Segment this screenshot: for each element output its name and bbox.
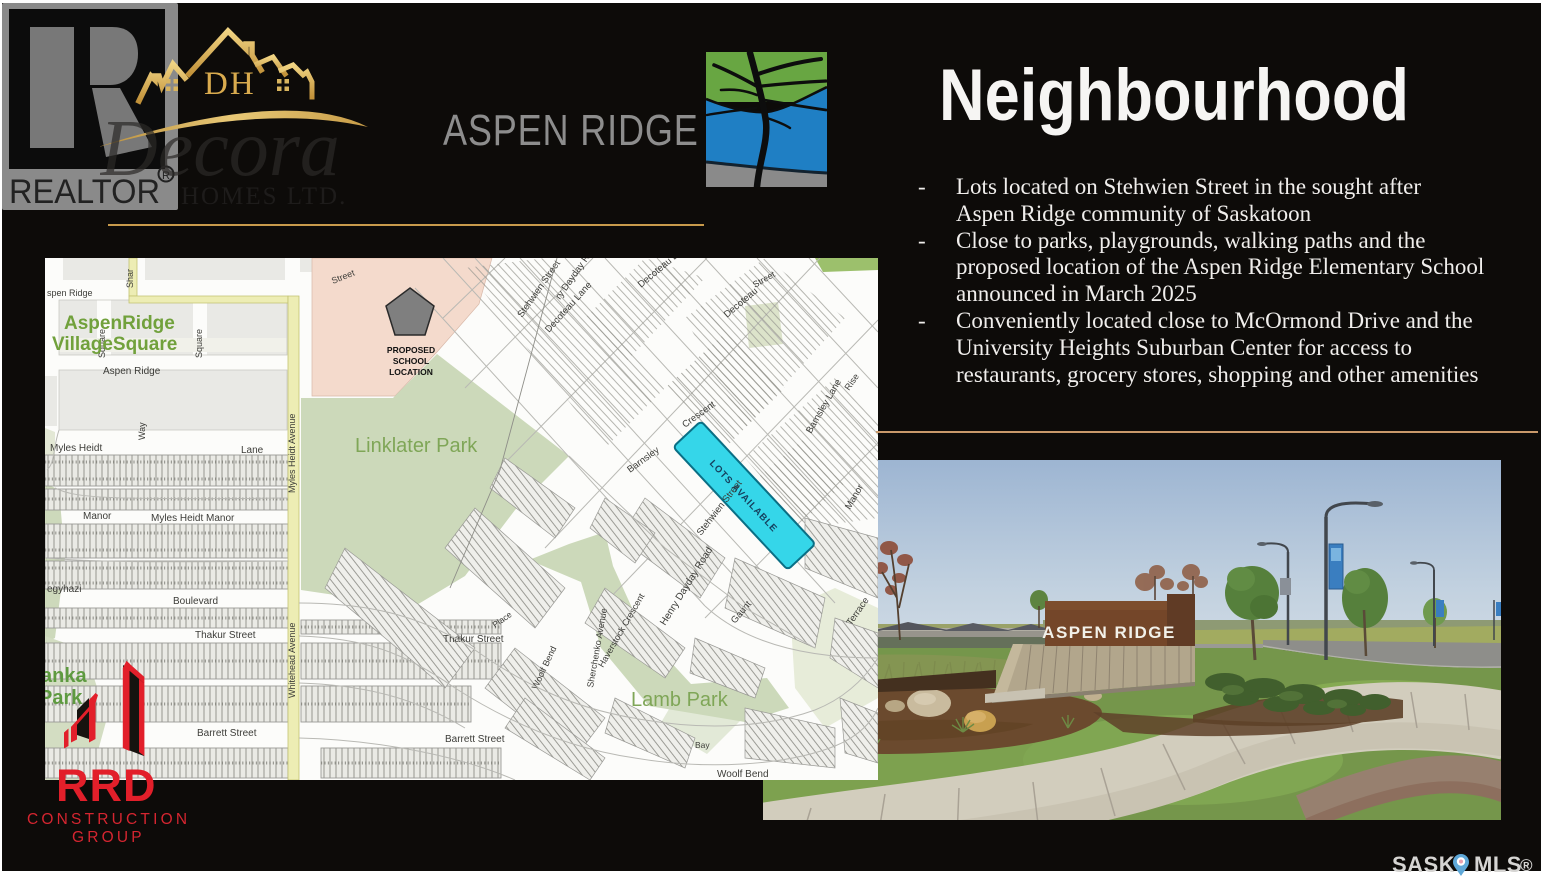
svg-text:SASK: SASK [1392,852,1455,877]
svg-text:Whitehead Avenue: Whitehead Avenue [287,623,297,698]
svg-text:egyhazi: egyhazi [47,584,81,595]
svg-text:ASPEN RIDGE: ASPEN RIDGE [1042,623,1176,642]
svg-text:Boulevard: Boulevard [173,596,218,607]
svg-text:Way: Way [137,422,147,440]
svg-text:Shar: Shar [125,269,135,288]
svg-text:Decora: Decora [100,105,340,193]
svg-text:Myles Heidt Avenue: Myles Heidt Avenue [287,414,297,493]
svg-text:PROPOSED: PROPOSED [387,345,435,355]
svg-text:Lane: Lane [241,445,264,456]
svg-text:LOCATION: LOCATION [389,367,433,377]
svg-text:MLS: MLS [1474,852,1522,877]
svg-text:Bay: Bay [695,740,710,750]
svg-text:Linklater Park: Linklater Park [355,435,478,457]
svg-text:HOMES LTD.: HOMES LTD. [181,183,347,210]
svg-text:Manor: Manor [83,511,112,522]
svg-text:Woolf Bend: Woolf Bend [717,769,769,780]
svg-text:VillageSquare: VillageSquare [52,334,177,355]
svg-text:spen Ridge: spen Ridge [47,288,93,298]
svg-text:Aspen Ridge: Aspen Ridge [103,366,161,377]
svg-text:RRD: RRD [56,760,157,811]
svg-text:Square: Square [194,329,204,358]
svg-text:®: ® [1520,856,1533,875]
svg-text:CONSTRUCTION: CONSTRUCTION [27,811,190,828]
svg-text:DH: DH [204,66,256,102]
svg-text:AspenRidge: AspenRidge [64,313,175,334]
svg-text:Myles Heidt Manor: Myles Heidt Manor [151,513,235,524]
svg-text:Barrett Street: Barrett Street [445,734,505,745]
svg-text:SCHOOL: SCHOOL [393,356,429,366]
svg-text:Myles Heidt: Myles Heidt [50,443,102,454]
svg-text:GROUP: GROUP [72,829,145,846]
svg-text:Thakur Street: Thakur Street [443,634,504,645]
svg-text:Lamb Park: Lamb Park [631,689,729,711]
